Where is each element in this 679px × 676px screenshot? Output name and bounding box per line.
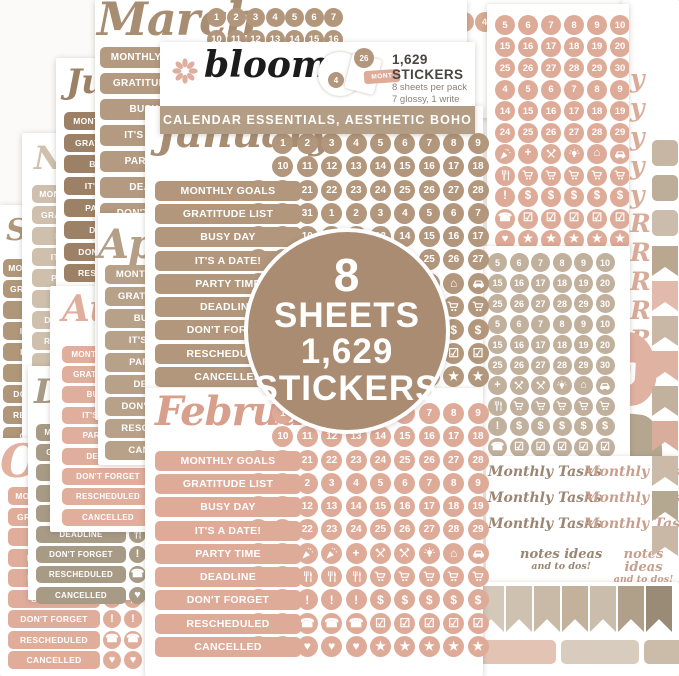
dollar-icon: $ [596, 417, 615, 436]
date-sticker-17: 17 [443, 156, 464, 177]
mini-date-sticker: 26 [354, 48, 374, 68]
pennant-sticker [562, 586, 588, 632]
exclaim-icon: ! [129, 546, 146, 563]
date-sticker-6: 6 [541, 80, 561, 100]
date-sticker-17: 17 [531, 335, 550, 354]
label-sticker-rescheduled: RESCHEDULED [155, 614, 301, 634]
phone-icon: ☎ [495, 209, 515, 229]
date-sticker-5: 5 [370, 133, 391, 154]
sheet-february: February 1234567891011121314151617181920… [145, 388, 483, 676]
cart-icon [596, 397, 615, 416]
date-sticker-24: 24 [346, 519, 367, 540]
date-sticker-8: 8 [443, 473, 464, 494]
date-sticker-8: 8 [553, 315, 572, 334]
label-sticker-deadline: DEADLINE [155, 567, 301, 587]
date-sticker-18: 18 [553, 274, 572, 293]
cart-icon [394, 566, 415, 587]
month-script-letter: R [630, 238, 651, 267]
cart-icon [419, 566, 440, 587]
calendar-icon: ☑ [443, 613, 464, 634]
date-sticker-12: 12 [321, 156, 342, 177]
star-icon: ★ [370, 636, 391, 657]
label-sticker-cancelled: CANCELLED [8, 651, 100, 669]
date-sticker-27: 27 [419, 519, 440, 540]
date-sticker-27: 27 [564, 123, 584, 143]
date-sticker-26: 26 [510, 294, 529, 313]
cart-icon [553, 397, 572, 416]
calendar-icon: ☑ [468, 613, 489, 634]
bulb-icon [564, 144, 584, 164]
label-sticker-don-t-forget: DON'T FORGET [8, 610, 100, 628]
label-sticker-rescheduled: RESCHEDULED [62, 488, 154, 505]
bulb-icon [419, 543, 440, 564]
date-sticker-1: 1 [272, 133, 293, 154]
date-sticker-4: 4 [394, 203, 415, 224]
date-sticker-4: 4 [346, 473, 367, 494]
phone-icon: ☎ [103, 631, 121, 649]
tools-icon [541, 144, 561, 164]
date-sticker-15: 15 [394, 426, 415, 447]
date-sticker-18: 18 [443, 496, 464, 517]
monthly-tasks-script: Monthly Tasks [488, 516, 584, 542]
date-sticker-13: 13 [321, 496, 342, 517]
date-sticker-26: 26 [541, 123, 561, 143]
plus-icon: + [346, 543, 367, 564]
calendar-icon: ☑ [610, 209, 629, 229]
calendar-icon: ☑ [531, 438, 550, 457]
home-icon: ⌂ [443, 543, 464, 564]
utensils-icon [346, 566, 367, 587]
label-sticker-cancelled: CANCELLED [62, 509, 154, 526]
date-sticker-27: 27 [443, 180, 464, 201]
tools-icon [370, 543, 391, 564]
february-labels: MONTHLY GOALSGRATITUDE LISTBUSY DAYIT'S … [155, 449, 301, 659]
cart-icon [564, 166, 584, 186]
month-script-letter: R [630, 209, 651, 238]
date-sticker-28: 28 [587, 123, 607, 143]
date-sticker-16: 16 [518, 37, 538, 57]
month-script-letter: y [630, 151, 651, 180]
date-sticker-27: 27 [531, 294, 550, 313]
date-sticker-23: 23 [346, 450, 367, 471]
date-sticker-28: 28 [443, 519, 464, 540]
date-sticker-28: 28 [553, 356, 572, 375]
date-sticker-26: 26 [394, 519, 415, 540]
utensils-icon [321, 566, 342, 587]
date-sticker-18: 18 [468, 156, 489, 177]
date-sticker-5: 5 [285, 8, 304, 27]
date-sticker-17: 17 [564, 101, 584, 121]
sheet-flag-stickers [472, 582, 679, 676]
product-banner: CALENDAR ESSENTIALS, AESTHETIC BOHO [160, 106, 475, 134]
date-sticker-9: 9 [587, 15, 607, 35]
heart-icon: ♥ [124, 651, 142, 669]
date-sticker-7: 7 [419, 133, 440, 154]
star-icon: ★ [443, 636, 464, 657]
date-sticker-8: 8 [587, 80, 607, 100]
date-sticker-8: 8 [443, 133, 464, 154]
label-sticker-rescheduled: RESCHEDULED [8, 631, 100, 649]
label-sticker-gratitude-list: GRATITUDE LIST [155, 204, 301, 224]
pink-date-grid: 5678910151617181920252627282930456789141… [495, 15, 629, 252]
dollar-icon: $ [370, 589, 391, 610]
badge-line: 8 [334, 254, 361, 298]
label-sticker-cancelled: CANCELLED [155, 637, 301, 657]
date-sticker-20: 20 [596, 274, 615, 293]
pennant-sticker [618, 586, 644, 632]
calendar-icon: ☑ [419, 613, 440, 634]
phone-icon: ☎ [321, 613, 342, 634]
calendar-icon: ☑ [394, 613, 415, 634]
label-sticker-gratitude-list: GRATITUDE LIST [155, 474, 301, 494]
date-sticker-18: 18 [587, 101, 607, 121]
label-sticker-busy-day: BUSY DAY [155, 227, 301, 247]
month-script-letter: y [630, 180, 651, 209]
car-icon [468, 543, 489, 564]
pennant-sticker [652, 386, 678, 416]
car-icon [468, 273, 489, 294]
dollar-icon: $ [587, 187, 607, 207]
sheet-right-pink-dates: 5678910151617181920252627282930456789141… [487, 4, 629, 252]
date-sticker-9: 9 [574, 253, 593, 272]
date-sticker-9: 9 [468, 473, 489, 494]
cart-icon [541, 166, 561, 186]
heart-icon: ♥ [129, 587, 146, 604]
date-sticker-3: 3 [246, 8, 265, 27]
date-sticker-27: 27 [541, 58, 561, 78]
date-sticker-19: 19 [587, 37, 607, 57]
calendar-icon: ☑ [510, 438, 529, 457]
date-sticker-3: 3 [370, 203, 391, 224]
calendar-icon: ☑ [587, 209, 607, 229]
date-sticker-15: 15 [495, 37, 515, 57]
date-sticker-29: 29 [587, 58, 607, 78]
date-sticker-4: 4 [346, 133, 367, 154]
date-sticker-17: 17 [443, 426, 464, 447]
date-sticker-19: 19 [574, 335, 593, 354]
pennant-sticker [652, 491, 678, 521]
exclaim-icon: ! [103, 610, 121, 628]
date-sticker-18: 18 [553, 335, 572, 354]
pennant-sticker [652, 526, 678, 556]
exclaim-icon: ! [124, 610, 142, 628]
calendar-icon: ☑ [574, 438, 593, 457]
date-sticker-9: 9 [468, 403, 489, 424]
tools-icon [510, 376, 529, 395]
home-icon: ⌂ [443, 273, 464, 294]
utensils-icon [495, 166, 515, 186]
date-sticker-16: 16 [419, 426, 440, 447]
date-sticker-18: 18 [564, 37, 584, 57]
date-sticker-29: 29 [574, 356, 593, 375]
date-sticker-26: 26 [510, 356, 529, 375]
date-sticker-8: 8 [553, 253, 572, 272]
date-sticker-25: 25 [370, 519, 391, 540]
date-sticker-6: 6 [394, 133, 415, 154]
calendar-icon: ☑ [553, 438, 572, 457]
pack-info: 8 sheets per pack [392, 82, 472, 94]
date-sticker-1: 1 [321, 203, 342, 224]
date-sticker-17: 17 [541, 37, 561, 57]
tan-date-grid: 5678910151617181920252627282930567891015… [488, 253, 617, 476]
date-sticker-22: 22 [321, 180, 342, 201]
cart-icon [518, 166, 538, 186]
date-sticker-9: 9 [610, 80, 629, 100]
date-sticker-27: 27 [468, 249, 489, 270]
bulb-icon [553, 376, 572, 395]
month-script-letter: y [630, 122, 651, 151]
cart-icon [370, 566, 391, 587]
date-sticker-6: 6 [510, 315, 529, 334]
date-sticker-17: 17 [419, 496, 440, 517]
date-sticker-22: 22 [321, 450, 342, 471]
label-sticker-cancelled: CANCELLED [36, 587, 126, 604]
date-sticker-6: 6 [394, 473, 415, 494]
date-sticker-16: 16 [443, 226, 464, 247]
sticker-count-badge: 8 SHEETS 1,629 STICKERS [244, 228, 450, 434]
notes-line: notes ideas [520, 548, 602, 561]
date-sticker-25: 25 [394, 450, 415, 471]
tab-sticker [652, 175, 678, 201]
star-icon: ★ [443, 366, 464, 387]
dollar-icon: $ [574, 417, 593, 436]
date-sticker-6: 6 [518, 15, 538, 35]
heart-icon: ♥ [321, 636, 342, 657]
date-sticker-2: 2 [346, 203, 367, 224]
label-bar-sticker [561, 640, 639, 664]
monthly-tasks-script: Monthly Tasks [488, 490, 584, 516]
dollar-icon: $ [468, 589, 489, 610]
date-sticker-2: 2 [227, 8, 246, 27]
plus-icon: + [518, 144, 538, 164]
date-sticker-11: 11 [297, 156, 318, 177]
tools-icon [531, 376, 550, 395]
month-script-letter: y [630, 64, 651, 93]
date-sticker-6: 6 [443, 203, 464, 224]
date-sticker-15: 15 [518, 101, 538, 121]
star-icon: ★ [468, 636, 489, 657]
flower-icon [172, 58, 198, 89]
date-sticker-7: 7 [531, 315, 550, 334]
pennant-sticker [652, 351, 678, 381]
date-sticker-7: 7 [531, 253, 550, 272]
pennant-sticker [652, 281, 678, 311]
cart-icon [610, 166, 629, 186]
date-sticker-30: 30 [596, 356, 615, 375]
label-sticker-it-s-a-date: IT'S A DATE! [155, 521, 301, 541]
date-sticker-29: 29 [610, 123, 629, 143]
star-icon: ★ [419, 636, 440, 657]
car-icon [596, 376, 615, 395]
home-icon: ⌂ [574, 376, 593, 395]
date-sticker-27: 27 [531, 356, 550, 375]
date-sticker-24: 24 [370, 450, 391, 471]
date-sticker-6: 6 [305, 8, 324, 27]
tab-sticker [652, 210, 678, 236]
dollar-icon: $ [394, 589, 415, 610]
date-sticker-9: 9 [468, 133, 489, 154]
date-sticker-2: 2 [297, 133, 318, 154]
exclaim-icon: ! [346, 589, 367, 610]
calendar-icon: ☑ [596, 438, 615, 457]
date-sticker-24: 24 [370, 180, 391, 201]
badge-line: 1,629 [301, 334, 394, 371]
dollar-icon: $ [564, 187, 584, 207]
label-sticker-monthly-goals: MONTHLY GOALS [155, 181, 301, 201]
star-icon: ★ [394, 636, 415, 657]
date-sticker-17: 17 [468, 226, 489, 247]
home-icon: ⌂ [587, 144, 607, 164]
dollar-icon: $ [443, 589, 464, 610]
badge-line: STICKERS [255, 371, 440, 408]
label-bar-sticker [644, 640, 679, 664]
date-sticker-15: 15 [370, 496, 391, 517]
date-sticker-18: 18 [468, 426, 489, 447]
date-sticker-15: 15 [419, 226, 440, 247]
dollar-icon: $ [518, 187, 538, 207]
date-sticker-19: 19 [574, 274, 593, 293]
label-sticker-don-t-forget: DON'T FORGET [36, 546, 126, 563]
cart-icon [468, 296, 489, 317]
date-sticker-14: 14 [370, 156, 391, 177]
cart-icon [443, 566, 464, 587]
date-sticker-9: 9 [574, 315, 593, 334]
label-sticker-don-t-forget: DON'T FORGET [155, 590, 301, 610]
heart-icon: ♥ [346, 636, 367, 657]
date-sticker-29: 29 [468, 519, 489, 540]
exclaim-icon: ! [321, 589, 342, 610]
date-sticker-6: 6 [510, 253, 529, 272]
date-sticker-13: 13 [346, 156, 367, 177]
label-sticker-rescheduled: RESCHEDULED [36, 566, 126, 583]
party-icon [321, 543, 342, 564]
cart-icon [531, 397, 550, 416]
dollar-icon: $ [531, 417, 550, 436]
edge-pennant-strip [652, 246, 678, 561]
date-sticker-19: 19 [610, 101, 629, 121]
phone-icon: ☎ [129, 566, 146, 583]
dollar-icon: $ [468, 319, 489, 340]
date-sticker-7: 7 [419, 473, 440, 494]
header-card: bloom 26 4 MONT 1,629 STICKERS 8 sheets … [160, 42, 475, 134]
date-sticker-17: 17 [531, 274, 550, 293]
product-image-canvas: Se MONTHLY GOALSGRATITUDE LISTBUSY DAYIT… [0, 0, 679, 676]
calendar-icon: ☑ [468, 343, 489, 364]
star-icon: ★ [468, 366, 489, 387]
edge-tab-strip [652, 140, 678, 245]
notes-ideas-script: notes ideas and to dos! [520, 548, 602, 572]
pennant-sticker [652, 456, 678, 486]
cart-icon [468, 566, 489, 587]
pennant-sticker [534, 586, 560, 632]
date-sticker-10: 10 [596, 253, 615, 272]
tab-sticker [652, 140, 678, 166]
date-sticker-3: 3 [321, 133, 342, 154]
party-icon [495, 144, 515, 164]
date-sticker-7: 7 [468, 203, 489, 224]
date-sticker-8: 8 [564, 15, 584, 35]
date-sticker-28: 28 [468, 450, 489, 471]
notes-line: and to dos! [608, 574, 679, 582]
date-sticker-11: 11 [297, 426, 318, 447]
date-sticker-28: 28 [468, 180, 489, 201]
label-sticker-don-t-forget: DON'T FORGET [62, 468, 154, 485]
pennant-sticker [652, 421, 678, 451]
date-sticker-7: 7 [324, 8, 343, 27]
date-sticker-10: 10 [610, 15, 629, 35]
cart-icon [587, 166, 607, 186]
sheet-right-tan-dates: 5678910151617181920252627282930567891015… [478, 246, 630, 476]
dollar-icon: $ [610, 187, 629, 207]
label-sticker-monthly-goals: MONTHLY GOALS [155, 451, 301, 471]
heart-icon: ♥ [103, 651, 121, 669]
pennant-sticker [652, 246, 678, 276]
date-sticker-20: 20 [596, 335, 615, 354]
label-sticker-busy-day: BUSY DAY [155, 497, 301, 517]
date-sticker-29: 29 [574, 294, 593, 313]
date-sticker-23: 23 [321, 519, 342, 540]
date-sticker-25: 25 [495, 58, 515, 78]
phone-icon: ☎ [124, 631, 142, 649]
date-sticker-28: 28 [564, 58, 584, 78]
car-icon [610, 144, 629, 164]
exclaim-icon: ! [495, 187, 515, 207]
month-script-letter: R [630, 296, 651, 325]
date-sticker-16: 16 [419, 156, 440, 177]
calendar-icon: ☑ [370, 613, 391, 634]
month-script-letter: y [630, 93, 651, 122]
calendar-icon: ☑ [541, 209, 561, 229]
flag-sticker-row [478, 586, 672, 632]
date-sticker-28: 28 [553, 294, 572, 313]
brand-logo: bloom [204, 44, 329, 86]
pennant-sticker [652, 316, 678, 346]
date-sticker-14: 14 [346, 496, 367, 517]
dollar-icon: $ [541, 187, 561, 207]
mini-date-sticker: 4 [328, 72, 344, 88]
sticker-count: 1,629 STICKERS [392, 52, 472, 82]
dollar-icon: $ [553, 417, 572, 436]
phone-icon: ☎ [346, 613, 367, 634]
date-sticker-4: 4 [495, 80, 515, 100]
date-sticker-26: 26 [419, 180, 440, 201]
flag-bar-row [478, 640, 679, 664]
date-sticker-5: 5 [419, 203, 440, 224]
date-sticker-7: 7 [541, 15, 561, 35]
notes-line: and to dos! [520, 561, 602, 572]
sheet-monthly-tasks: Monthly Tasks Monthly Tasks Monthly Task… [486, 456, 679, 582]
calendar-icon: ☑ [518, 209, 538, 229]
date-sticker-26: 26 [443, 249, 464, 270]
monthly-tasks-script: Monthly Tasks [488, 464, 584, 490]
dollar-icon: $ [419, 589, 440, 610]
date-sticker-26: 26 [518, 58, 538, 78]
cart-icon [510, 397, 529, 416]
date-sticker-5: 5 [495, 15, 515, 35]
date-sticker-7: 7 [564, 80, 584, 100]
pennant-sticker [590, 586, 616, 632]
product-montage: 26 4 MONT [318, 48, 402, 98]
cart-icon [574, 397, 593, 416]
pennant-sticker [506, 586, 532, 632]
label-sticker-party-time: PARTY TIME [155, 544, 301, 564]
tools-icon [394, 543, 415, 564]
dollar-icon: $ [510, 417, 529, 436]
date-sticker-16: 16 [510, 335, 529, 354]
calendar-icon: ☑ [564, 209, 584, 229]
date-sticker-30: 30 [610, 58, 629, 78]
date-sticker-16: 16 [510, 274, 529, 293]
